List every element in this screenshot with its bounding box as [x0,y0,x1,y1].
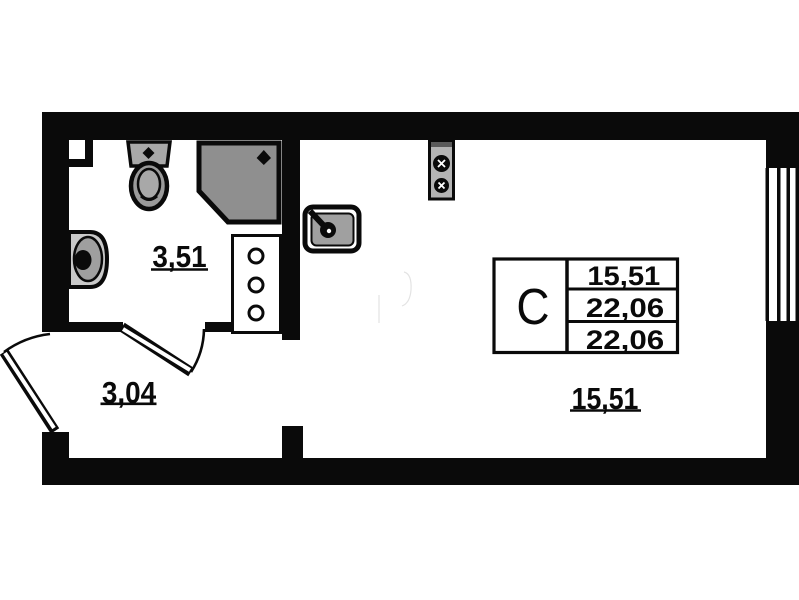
svg-text:22,06: 22,06 [586,326,664,356]
svg-text:С: С [516,279,549,336]
svg-text:22,06: 22,06 [586,294,664,324]
svg-text:3,04: 3,04 [102,376,157,411]
svg-text:15,51: 15,51 [587,261,660,291]
